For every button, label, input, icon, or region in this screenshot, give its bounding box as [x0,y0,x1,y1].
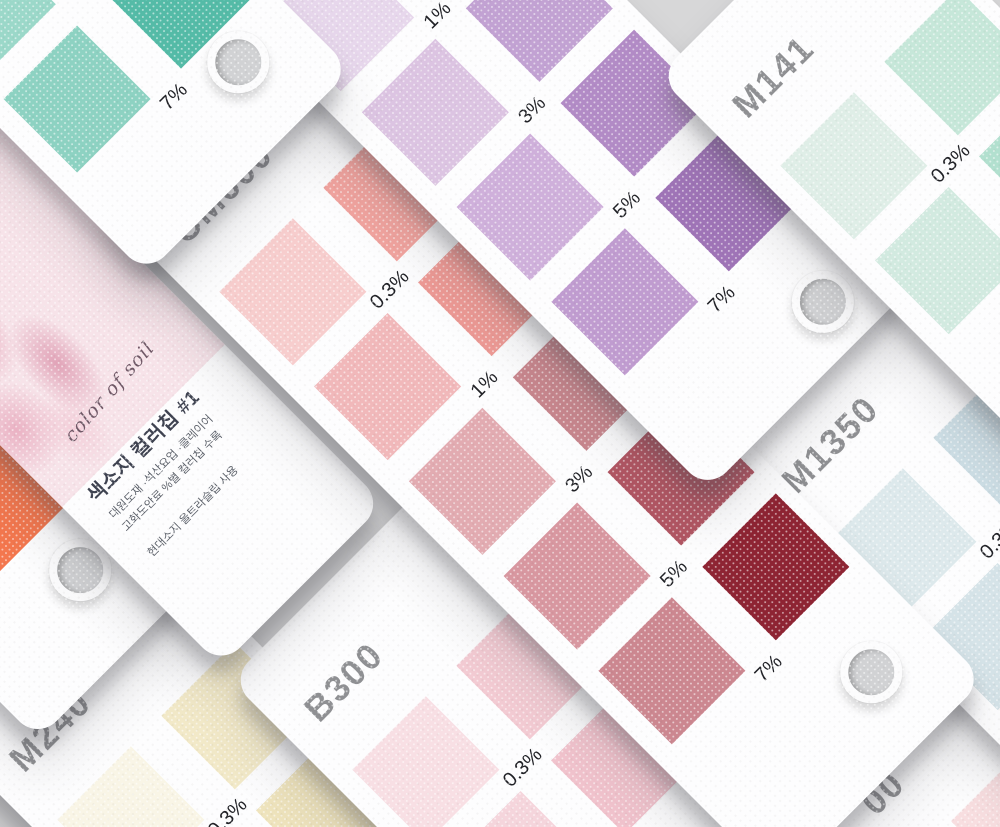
swatch-teal-row1-light [4,25,151,172]
swatch-cm600-row1-light [314,313,461,460]
swatch-cm600-row3-light [504,503,651,650]
swatch-m141-row0-light [780,92,927,239]
punch-hole-cm600 [827,628,915,716]
swatch-m240-row0-light [57,746,204,827]
info-card-desc-3: 현대소지 울트라슬립 사용 [146,464,242,560]
swatch-cm600-row2-light [409,408,556,555]
swatch-purple-row1-dark [466,0,613,82]
card-title-m141: M141 [726,29,821,124]
swatch-corner-row0-dark [951,748,1000,827]
swatch-cm600-row4-light [598,597,745,744]
swatch-cm600-row0-light [219,218,366,365]
swatch-m141-row0-dark [884,0,1000,135]
swatch-purple-row2-light [457,134,604,281]
photo-scene: M2400.3%B3000.3%00M13500.3%color of soil… [0,0,1000,827]
swatch-purple-row3-light [551,228,698,375]
swatch-purple-row1-light [362,39,509,186]
swatch-m141-row1-light [875,187,1000,334]
card-title-b300: B300 [298,636,390,728]
swatch-b300-row0-light [352,696,499,827]
